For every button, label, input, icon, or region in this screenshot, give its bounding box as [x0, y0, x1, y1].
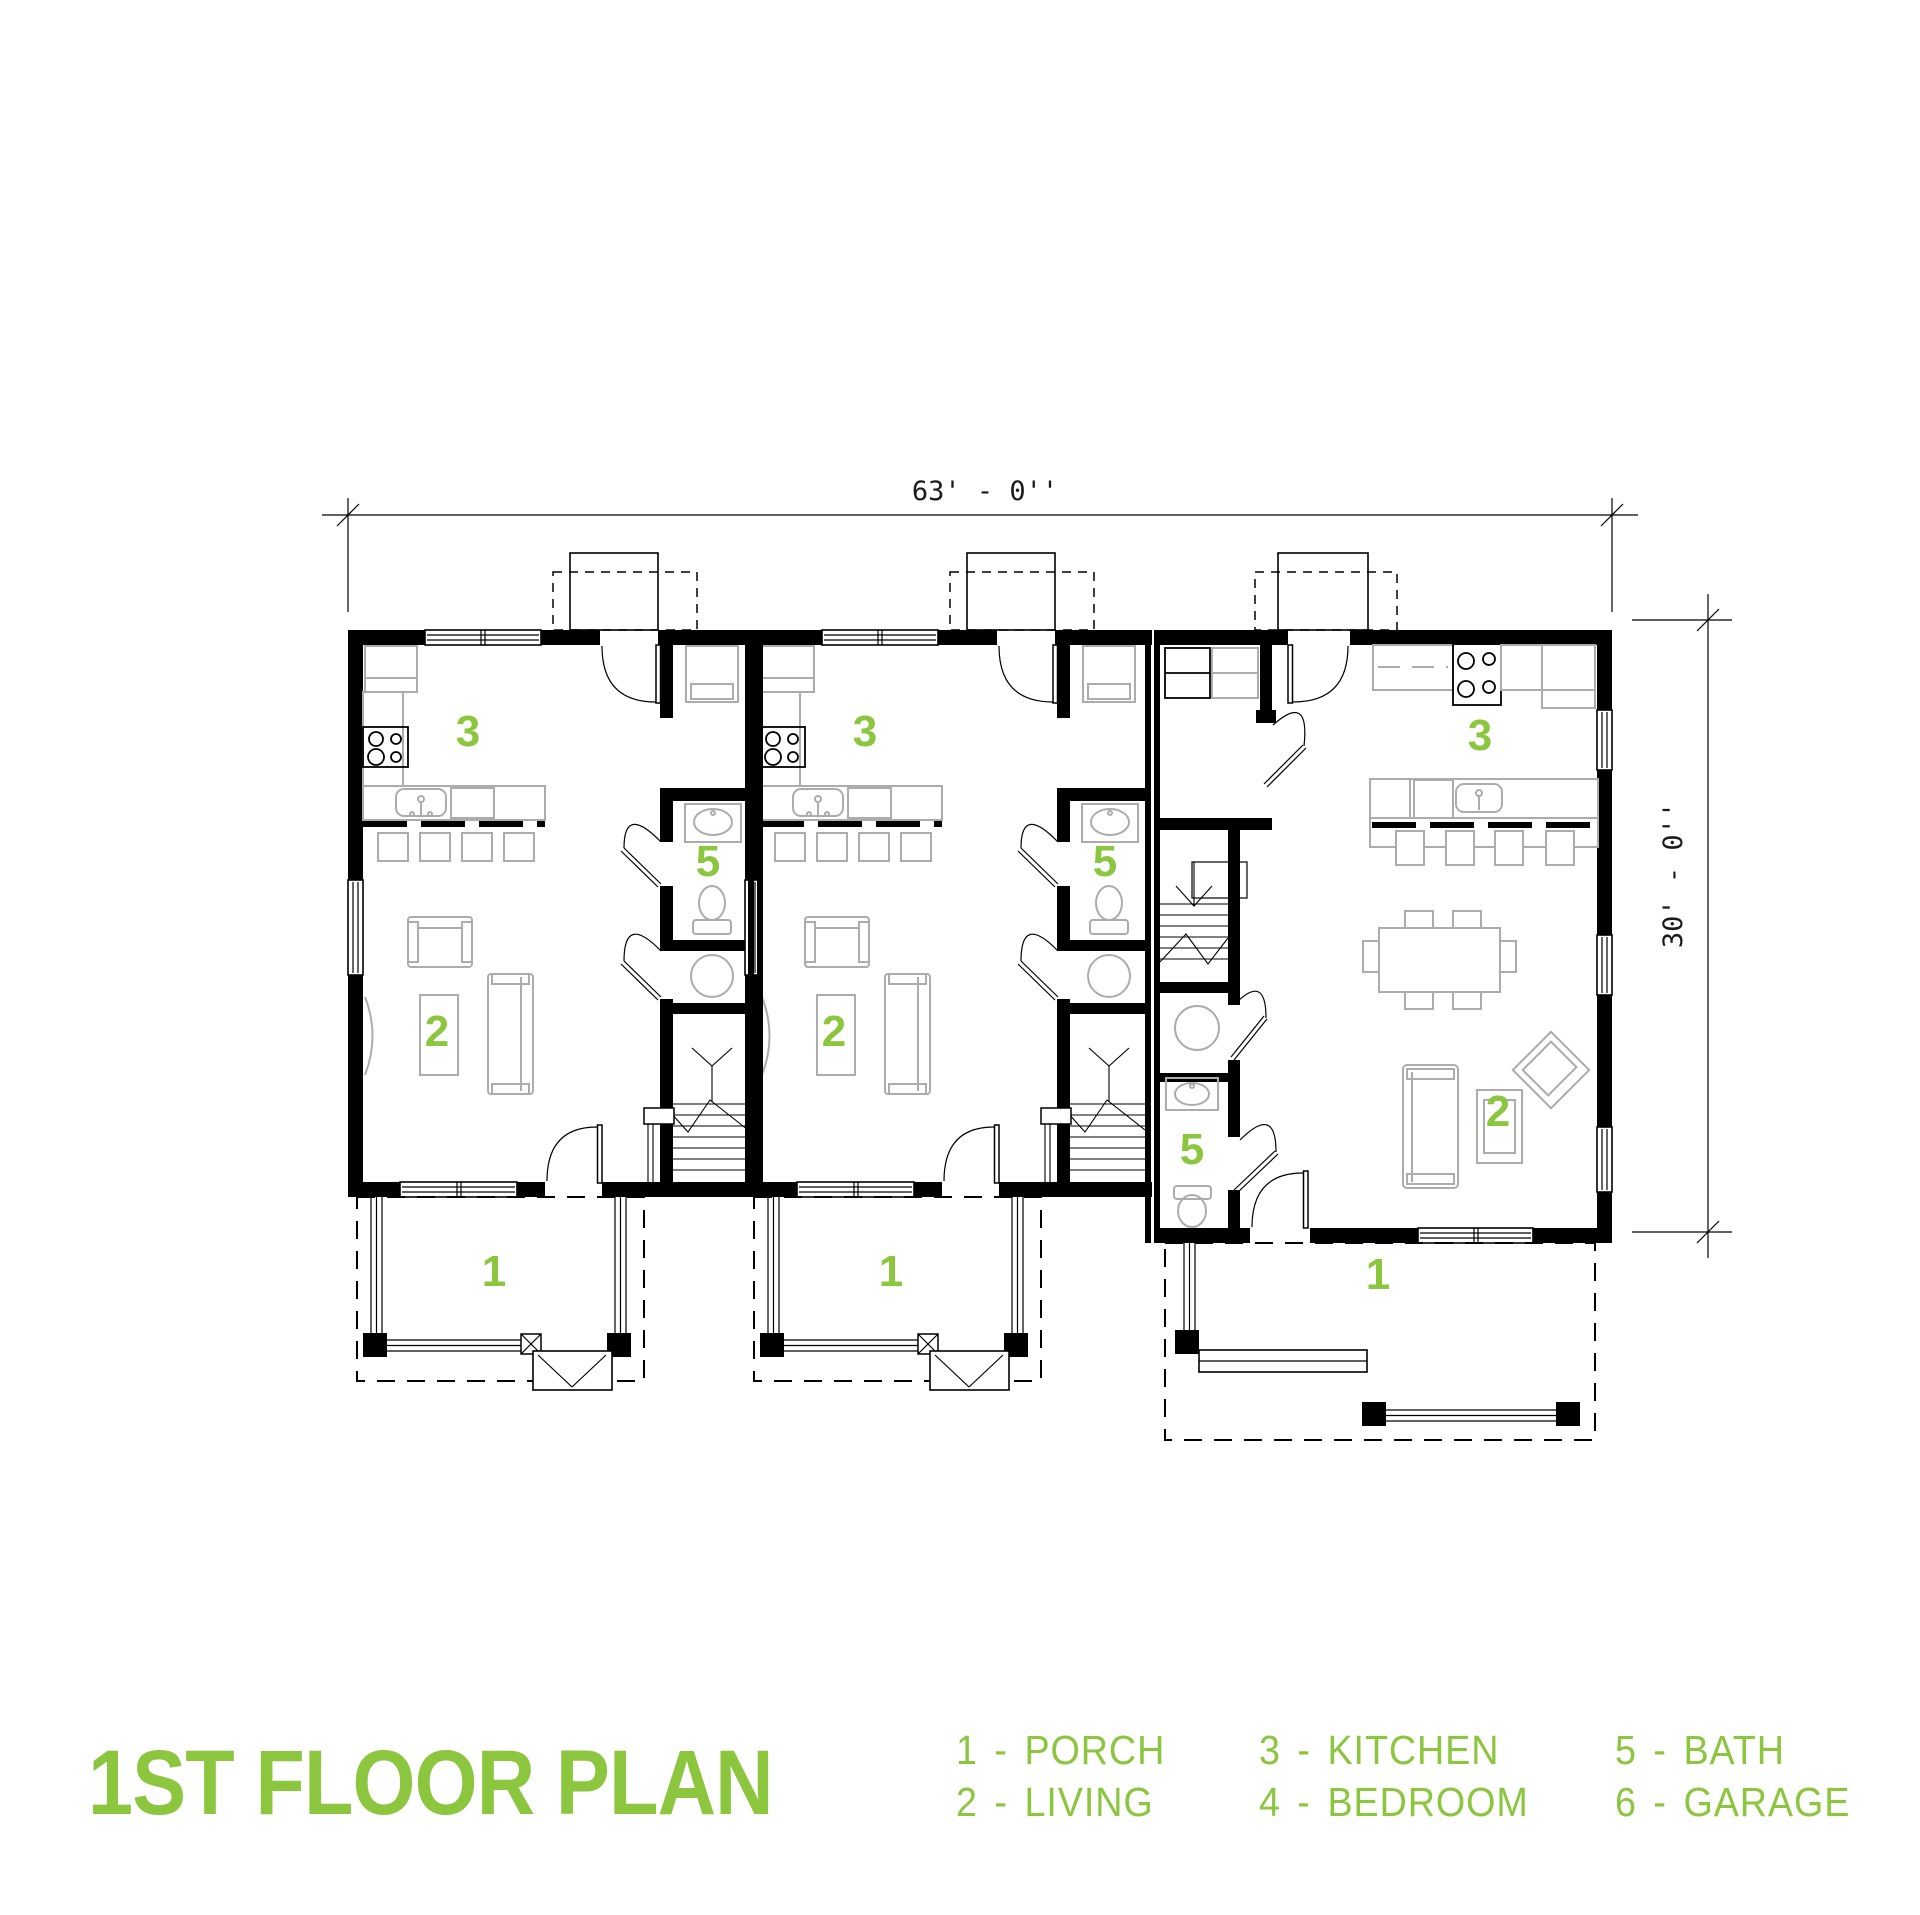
chair — [1405, 911, 1433, 928]
legend-item-garage: 6-GARAGE — [1615, 1780, 1850, 1826]
legend-item-bedroom: 4-BEDROOM — [1259, 1780, 1529, 1826]
dimension-depth: 30' - 0'' — [1632, 594, 1732, 1258]
floor-plan-page: 3 5 2 1 — [0, 0, 1920, 1915]
laundry — [1165, 648, 1258, 698]
stool — [1546, 831, 1574, 865]
unit-2 — [745, 553, 1152, 1390]
doors — [1231, 645, 1348, 1228]
porch-post — [1556, 1402, 1580, 1426]
porch-post — [1362, 1402, 1386, 1426]
dishwasher — [1414, 780, 1453, 818]
dining-furniture — [1363, 911, 1516, 1009]
floor-plan-drawing: 3 5 2 1 — [0, 0, 1920, 1915]
legend-item-living: 2-LIVING — [956, 1780, 1154, 1826]
chair — [1453, 911, 1481, 928]
stool — [1495, 831, 1523, 865]
shower — [1175, 1006, 1219, 1050]
dining-table — [1379, 928, 1500, 992]
kitchen-label: 3 — [1468, 711, 1492, 760]
fridge — [1542, 645, 1595, 708]
porch-post — [1175, 1330, 1199, 1354]
chair — [1500, 941, 1516, 972]
unit-1 — [348, 553, 755, 1390]
chair — [1363, 941, 1379, 972]
accent-chair — [1513, 1032, 1589, 1108]
unit-3: 3 5 2 1 — [1160, 553, 1612, 1440]
chair — [1405, 992, 1433, 1009]
width-dimension-text: 63' - 0'' — [912, 476, 1058, 507]
back-stoop — [1255, 553, 1397, 630]
toilet-tank — [1174, 1186, 1211, 1199]
legend: 1-PORCH 2-LIVING 3-KITCHEN 4-BEDROOM 5-B… — [956, 1728, 1850, 1826]
porch-label: 1 — [1366, 1250, 1390, 1299]
party-wall-2 — [1145, 630, 1160, 1243]
page-title: 1ST FLOOR PLAN — [88, 1732, 773, 1834]
title-block: 1ST FLOOR PLAN — [88, 1732, 773, 1834]
depth-dimension-text: 30' - 0'' — [1658, 802, 1689, 948]
stool — [1396, 831, 1424, 865]
chair — [1453, 992, 1481, 1009]
stool — [1446, 831, 1474, 865]
bath-strip — [1166, 1006, 1219, 1227]
bath-label: 5 — [1180, 1125, 1204, 1174]
living-label: 2 — [1486, 1087, 1510, 1136]
legend-item-porch: 1-PORCH — [956, 1728, 1165, 1774]
legend-item-bath: 5-BATH — [1615, 1728, 1785, 1774]
legend-item-kitchen: 3-KITCHEN — [1259, 1728, 1499, 1774]
